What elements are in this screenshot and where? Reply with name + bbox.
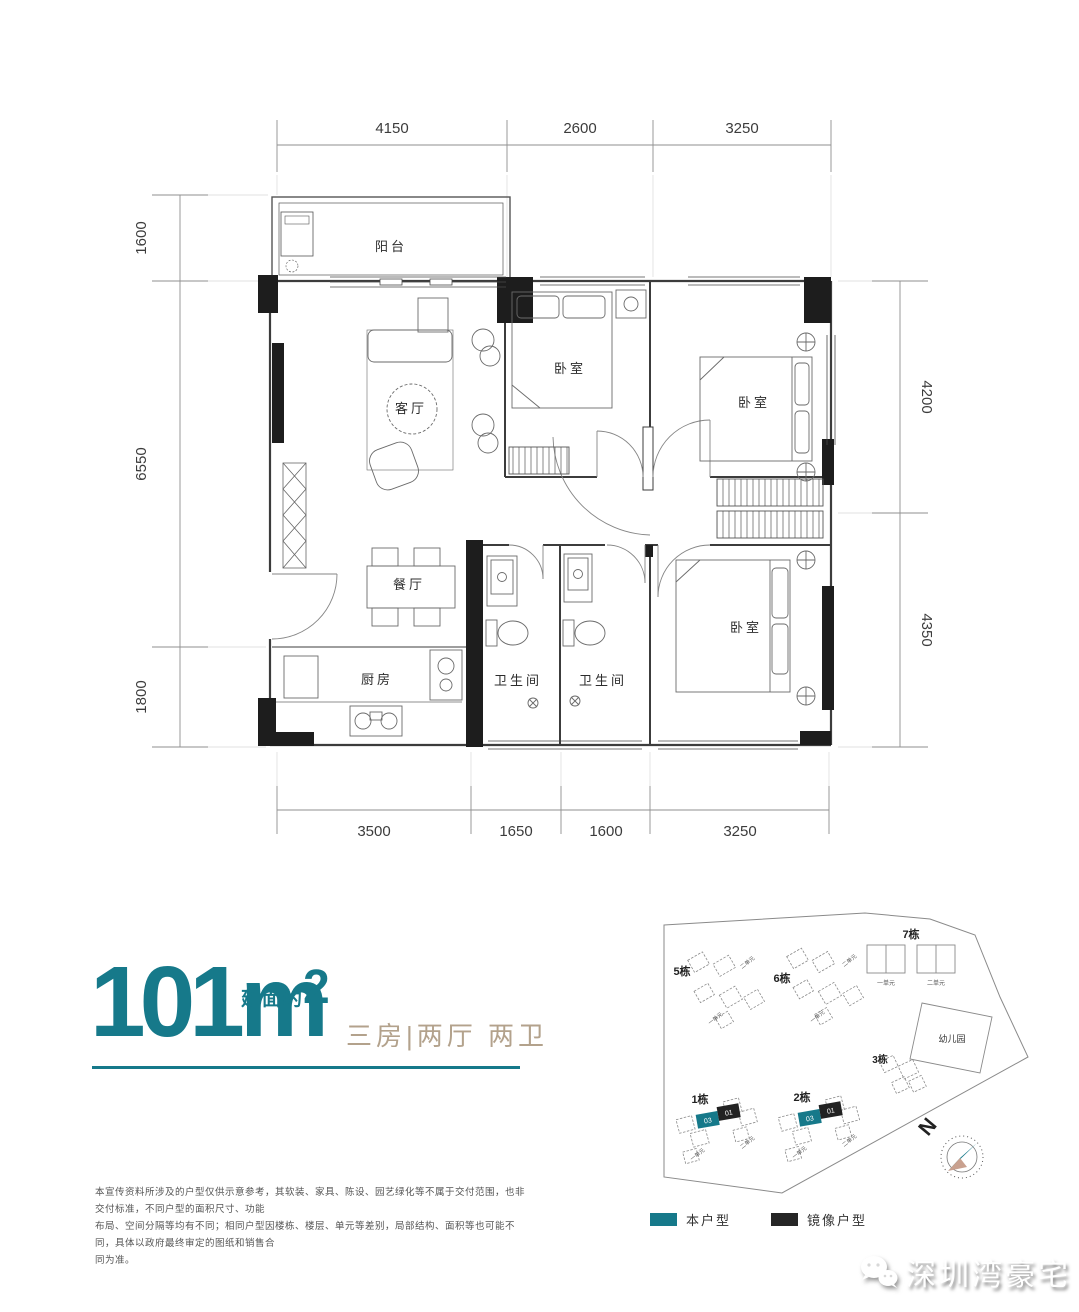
dimensions-bottom: 3500 1650 1600 3250 — [277, 786, 829, 840]
legend-mirror-label: 镜像户型 — [807, 1210, 867, 1229]
unit-label: 一单元 — [706, 1010, 724, 1027]
unit-self-number: 03 — [806, 1115, 815, 1123]
dim-right-2: 4350 — [918, 613, 935, 646]
room-label-bath2: 卫生间 — [579, 673, 627, 688]
unit-label: 二单元 — [738, 1134, 756, 1151]
room-label-bedroom1: 卧室 — [554, 361, 586, 376]
watermark: 深圳湾豪宅 — [858, 1250, 1071, 1294]
area-prefix: 建面约 — [241, 984, 304, 1011]
room-label-balcony: 阳台 — [375, 239, 407, 254]
living-room-furniture — [366, 298, 500, 493]
site-boundary — [664, 913, 1028, 1193]
dimensions-left: 1600 6550 1800 — [133, 195, 208, 747]
dim-bottom-1: 3500 — [357, 823, 390, 840]
building-2-label: 2栋 — [793, 1090, 810, 1104]
duct-shaft — [283, 463, 306, 568]
unit-label: 二单元 — [840, 1132, 858, 1149]
unit-mirror-number: 01 — [724, 1109, 733, 1117]
building-7-cluster: 7栋 一单元 二单元 — [867, 927, 955, 987]
unit-label: 一单元 — [877, 979, 895, 987]
room-label-bedroom3: 卧室 — [730, 620, 762, 635]
disclaimer-line2: 布局、空间分隔等均有不同；相同户型因楼栋、楼层、单元等差别，局部结构、面积等也可… — [95, 1218, 533, 1252]
legend: 本户型 镜像户型 — [650, 1210, 867, 1229]
dim-left-1: 1600 — [133, 221, 150, 254]
unit-mirror-number: 01 — [826, 1107, 835, 1115]
legend-mirror-swatch — [771, 1213, 798, 1226]
room-label-kitchen: 厨房 — [361, 672, 393, 687]
dim-top-3: 3250 — [725, 120, 758, 137]
disclaimer-line3: 同为准。 — [95, 1252, 533, 1269]
dimensions-top: 4150 2600 3250 — [277, 120, 831, 172]
kindergarten-label: 幼儿园 — [938, 1033, 965, 1044]
building-7-label: 7栋 — [902, 927, 919, 941]
dim-top-2: 2600 — [563, 120, 596, 137]
dim-bottom-4: 3250 — [723, 823, 756, 840]
building-6-cluster: 6栋 二单元 一单元 — [773, 934, 864, 1028]
room-label-bedroom2: 卧室 — [738, 395, 770, 410]
dim-left-2: 6550 — [133, 447, 150, 480]
unit-label: 一单元 — [790, 1144, 808, 1161]
unit-label: 二单元 — [738, 954, 756, 971]
layout-text: 三房|两厅 两卫 — [346, 1016, 548, 1053]
room-label-dining: 餐厅 — [393, 577, 425, 592]
room-label-living: 客厅 — [395, 401, 427, 416]
legend-self-swatch — [650, 1213, 677, 1226]
north-compass: N — [914, 1114, 983, 1178]
building-1-label: 1栋 — [691, 1092, 708, 1106]
area-superscript: 2 — [303, 964, 330, 1012]
kindergarten: 幼儿园 — [910, 1003, 992, 1073]
accent-rule — [92, 1066, 520, 1069]
unit-label: 一单元 — [808, 1008, 826, 1025]
dim-left-3: 1800 — [133, 680, 150, 713]
dimensions-right: 4200 4350 — [872, 281, 935, 747]
floor-plan-drawing: 4150 2600 3250 3500 1650 1600 3250 1600 — [0, 0, 1079, 880]
dim-top-1: 4150 — [375, 120, 408, 137]
building-1-cluster: 03 01 1栋 一单元 二单元 — [673, 1092, 763, 1164]
floor-plan-page: 4150 2600 3250 3500 1650 1600 3250 1600 — [0, 0, 1079, 1312]
legend-self-label: 本户型 — [686, 1210, 731, 1229]
wechat-icon — [858, 1253, 900, 1291]
unit-label: 一单元 — [688, 1146, 706, 1163]
building-5-cluster: 5栋 二单元 一单元 — [673, 937, 765, 1031]
watermark-text: 深圳湾豪宅 — [906, 1250, 1071, 1294]
dim-bottom-2: 1650 — [499, 823, 532, 840]
building-3-cluster: 3栋 — [872, 1048, 926, 1100]
dim-bottom-3: 1600 — [589, 823, 622, 840]
area-number: 101 — [90, 952, 239, 1052]
building-6-label: 6栋 — [773, 971, 790, 985]
site-plan: 5栋 二单元 一单元 6栋 二单元 一单元 7栋 一单元 二单元 幼儿园 — [630, 905, 1060, 1205]
unit-self-number: 03 — [704, 1117, 713, 1125]
compass-needle-tail — [948, 1158, 967, 1171]
room-label-bath1: 卫生间 — [494, 673, 542, 688]
building-2-cluster: 03 01 2栋 一单元 二单元 — [775, 1090, 865, 1162]
unit-label: 二单元 — [840, 952, 858, 969]
unit-label: 二单元 — [927, 979, 945, 987]
disclaimer-text: 本宣传资料所涉及的户型仅供示意参考，其软装、家具、陈设、园艺绿化等不属于交付范围… — [95, 1184, 533, 1269]
disclaimer-line1: 本宣传资料所涉及的户型仅供示意参考，其软装、家具、陈设、园艺绿化等不属于交付范围… — [95, 1184, 533, 1218]
building-3-label: 3栋 — [872, 1053, 888, 1066]
dim-right-1: 4200 — [918, 380, 935, 413]
building-5-label: 5栋 — [673, 964, 690, 978]
kitchen-fixtures — [276, 650, 462, 736]
